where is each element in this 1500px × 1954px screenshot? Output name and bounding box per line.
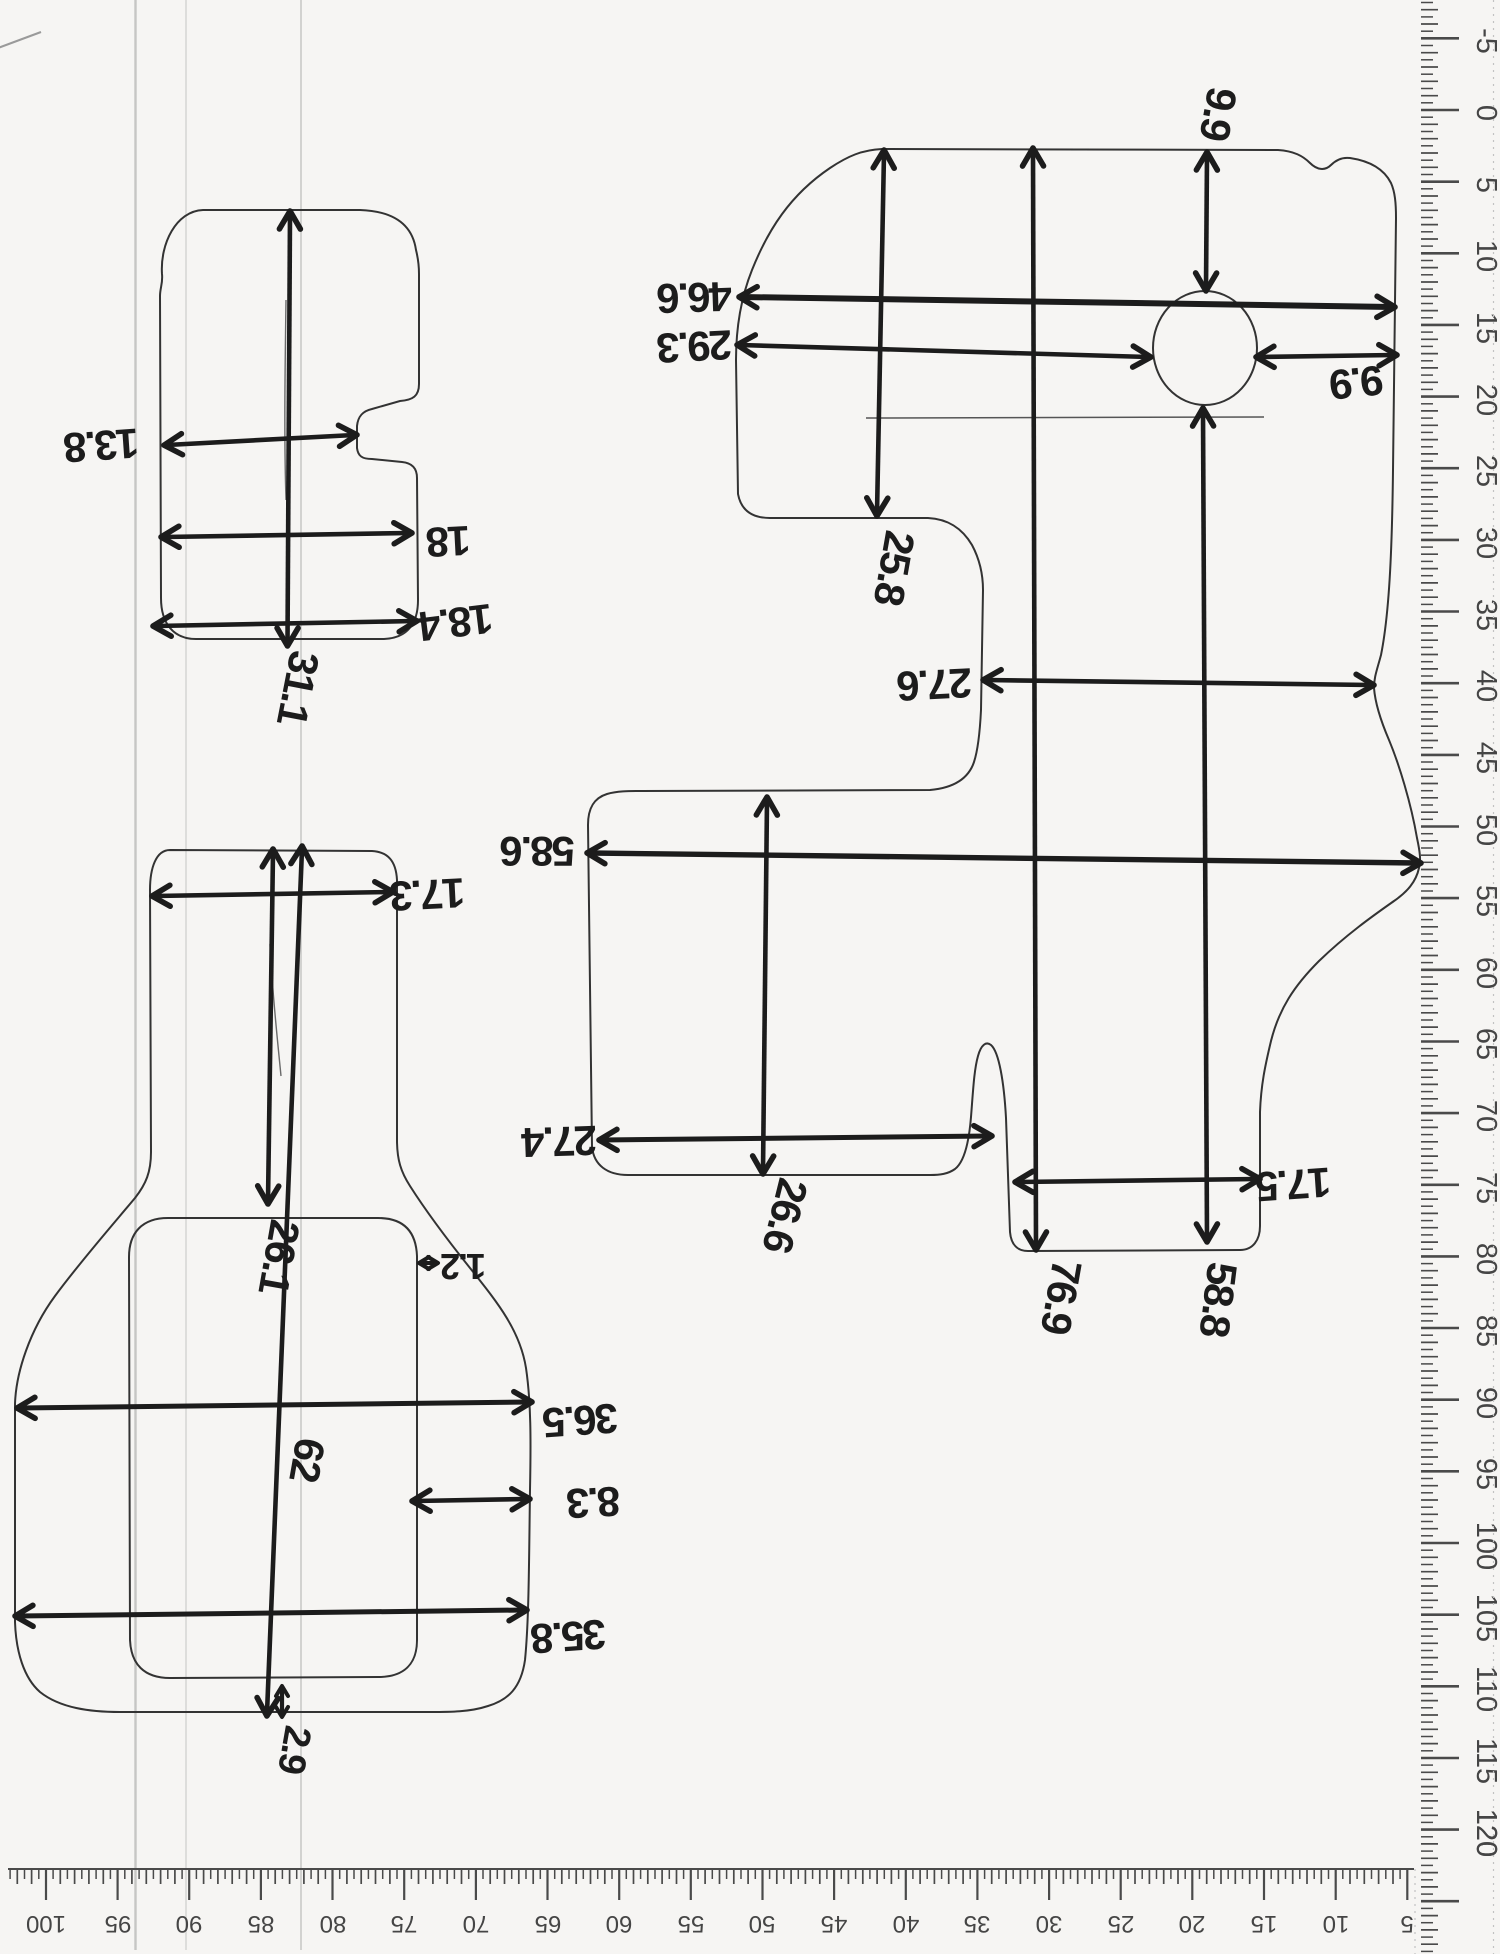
svg-text:9.9: 9.9 [1328, 356, 1386, 408]
svg-text:110: 110 [1470, 1666, 1500, 1712]
svg-text:120: 120 [1470, 1809, 1500, 1857]
svg-text:10: 10 [1470, 240, 1500, 272]
svg-text:70: 70 [1470, 1100, 1500, 1132]
svg-text:70: 70 [463, 1910, 490, 1937]
svg-text:15: 15 [1251, 1910, 1278, 1937]
svg-text:20: 20 [1179, 1910, 1206, 1937]
svg-text:90: 90 [176, 1910, 203, 1937]
svg-text:25: 25 [1470, 455, 1500, 487]
svg-text:65: 65 [1470, 1028, 1500, 1060]
svg-text:90: 90 [1470, 1387, 1500, 1419]
svg-text:85: 85 [248, 1910, 275, 1937]
svg-text:55: 55 [1470, 885, 1500, 917]
svg-text:0: 0 [1470, 105, 1500, 121]
svg-text:65: 65 [535, 1910, 562, 1937]
svg-text:50: 50 [1470, 814, 1500, 846]
svg-text:58.8: 58.8 [1190, 1260, 1246, 1341]
svg-text:40: 40 [1470, 670, 1500, 702]
svg-text:55: 55 [678, 1910, 705, 1937]
svg-text:46.6: 46.6 [657, 273, 733, 323]
svg-text:-5: -5 [1470, 28, 1500, 54]
svg-text:115: 115 [1470, 1738, 1500, 1784]
svg-text:30: 30 [1470, 527, 1500, 559]
svg-text:45: 45 [1470, 742, 1500, 774]
svg-text:20: 20 [1470, 384, 1500, 416]
svg-text:18.4: 18.4 [414, 595, 496, 651]
svg-text:25: 25 [1108, 1910, 1135, 1937]
svg-text:100: 100 [1470, 1522, 1500, 1570]
svg-text:105: 105 [1470, 1594, 1500, 1642]
svg-text:95: 95 [1470, 1458, 1500, 1490]
svg-text:10: 10 [1323, 1910, 1350, 1937]
svg-text:29.3: 29.3 [656, 321, 733, 372]
svg-text:35: 35 [964, 1910, 991, 1937]
svg-text:45: 45 [821, 1910, 848, 1937]
svg-text:1.2: 1.2 [441, 1246, 486, 1287]
svg-text:40: 40 [893, 1910, 920, 1937]
svg-text:95: 95 [105, 1910, 132, 1937]
svg-text:13.8: 13.8 [62, 419, 140, 471]
svg-text:15: 15 [1470, 312, 1500, 344]
svg-text:30: 30 [1036, 1910, 1063, 1937]
svg-text:58.6: 58.6 [500, 828, 574, 875]
svg-text:75: 75 [1470, 1172, 1500, 1204]
svg-text:2.9: 2.9 [269, 1723, 319, 1777]
svg-text:35: 35 [1470, 599, 1500, 631]
svg-text:18: 18 [425, 517, 472, 566]
svg-text:36.5: 36.5 [541, 1394, 619, 1446]
svg-text:75: 75 [391, 1910, 418, 1937]
svg-text:27.6: 27.6 [896, 659, 973, 710]
svg-text:17.3: 17.3 [389, 869, 466, 920]
svg-text:62: 62 [280, 1435, 334, 1486]
svg-text:5: 5 [1400, 1910, 1413, 1937]
svg-text:60: 60 [1470, 957, 1500, 989]
svg-text:85: 85 [1470, 1315, 1500, 1347]
svg-text:80: 80 [1470, 1243, 1500, 1275]
svg-text:60: 60 [606, 1910, 633, 1937]
svg-text:17.5: 17.5 [1254, 1158, 1332, 1210]
svg-text:100: 100 [26, 1910, 66, 1937]
svg-text:50: 50 [749, 1910, 776, 1937]
svg-text:8.3: 8.3 [566, 1478, 621, 1528]
svg-text:27.4: 27.4 [520, 1117, 598, 1167]
svg-text:80: 80 [320, 1910, 347, 1937]
svg-text:5: 5 [1470, 177, 1500, 193]
svg-text:9.9: 9.9 [1191, 84, 1246, 144]
svg-text:35.8: 35.8 [529, 1610, 607, 1662]
